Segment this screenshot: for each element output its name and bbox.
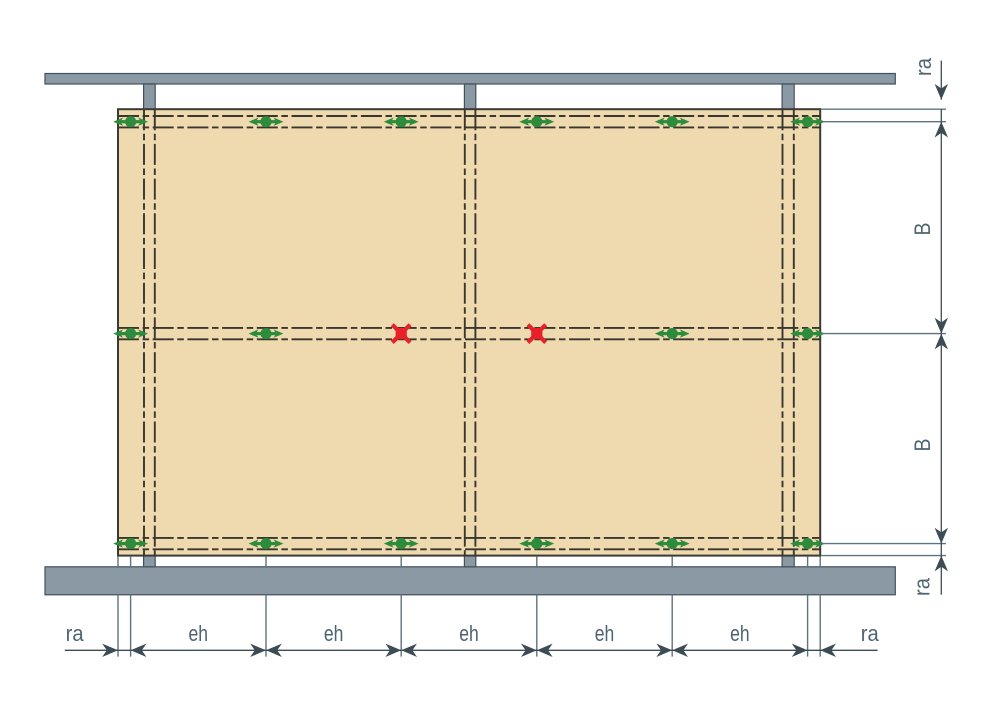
svg-text:eh: eh [459, 621, 479, 646]
svg-text:eh: eh [595, 621, 615, 646]
svg-text:B: B [910, 223, 935, 236]
svg-text:B: B [910, 439, 935, 452]
svg-text:eh: eh [730, 621, 750, 646]
svg-text:eh: eh [189, 621, 209, 646]
svg-text:ra: ra [909, 577, 934, 596]
svg-text:ra: ra [66, 621, 85, 646]
svg-text:ra: ra [911, 57, 936, 76]
svg-text:eh: eh [324, 621, 344, 646]
svg-text:ra: ra [861, 621, 880, 646]
